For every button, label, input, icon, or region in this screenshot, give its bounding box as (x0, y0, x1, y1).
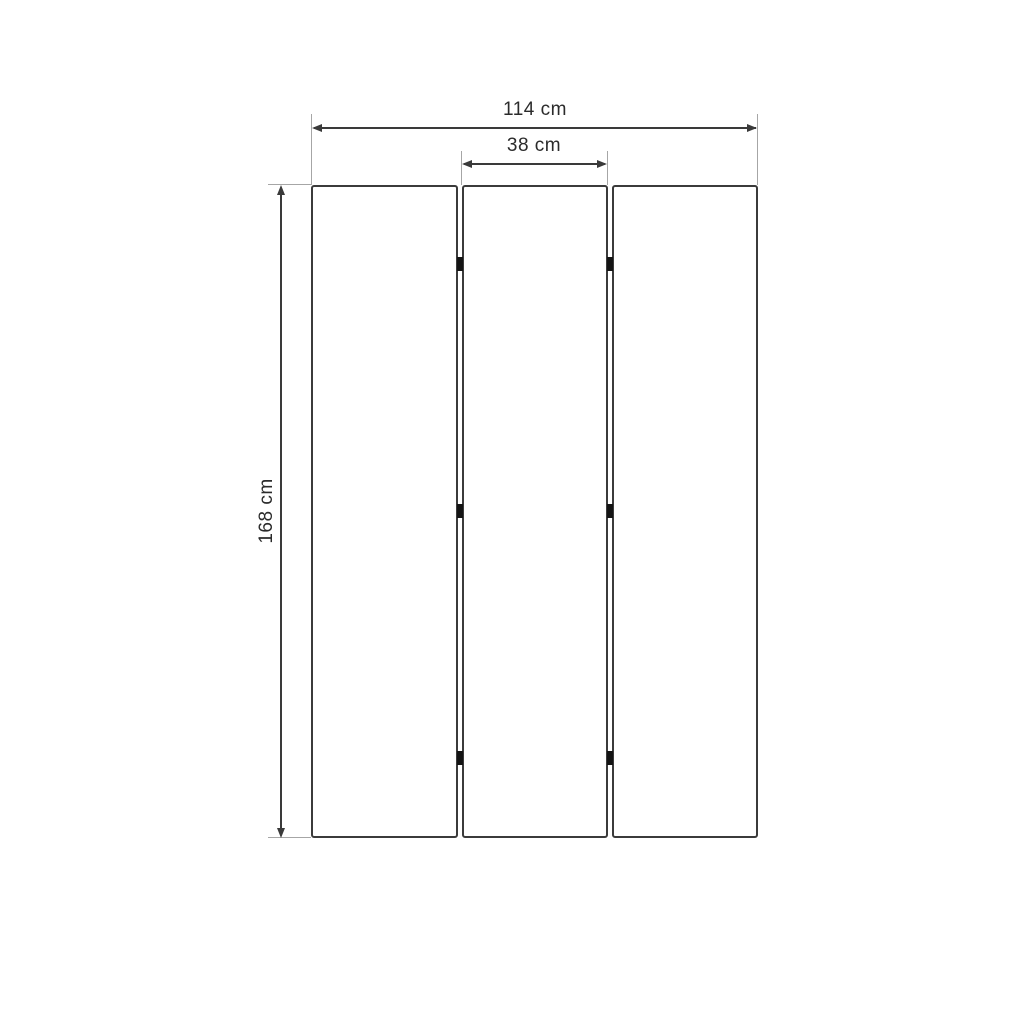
total-width-label: 114 cm (475, 98, 595, 122)
hinge-icon (457, 504, 463, 518)
panel-width-dimension-line (464, 163, 605, 165)
hinge-icon (607, 504, 613, 518)
screen-panel-left (311, 185, 458, 838)
hinge-icon (457, 751, 463, 765)
height-label: 168 cm (255, 451, 279, 571)
extension-line (268, 837, 311, 838)
extension-line (461, 151, 462, 185)
extension-line (268, 184, 311, 185)
total-width-dimension-line (314, 127, 756, 129)
arrowhead-left-icon (312, 124, 322, 132)
panel-width-label: 38 cm (474, 134, 594, 158)
hinge-icon (607, 257, 613, 271)
extension-line (757, 114, 758, 185)
dimension-diagram: 114 cm 38 cm 168 cm (0, 0, 1024, 1024)
arrowhead-left-icon (462, 160, 472, 168)
arrowhead-right-icon (747, 124, 757, 132)
arrowhead-right-icon (597, 160, 607, 168)
extension-line (607, 151, 608, 185)
height-dimension-line (280, 188, 282, 834)
hinge-icon (607, 751, 613, 765)
arrowhead-down-icon (277, 828, 285, 838)
screen-panel-right (612, 185, 758, 838)
arrowhead-up-icon (277, 185, 285, 195)
hinge-icon (457, 257, 463, 271)
screen-panel-middle (462, 185, 608, 838)
